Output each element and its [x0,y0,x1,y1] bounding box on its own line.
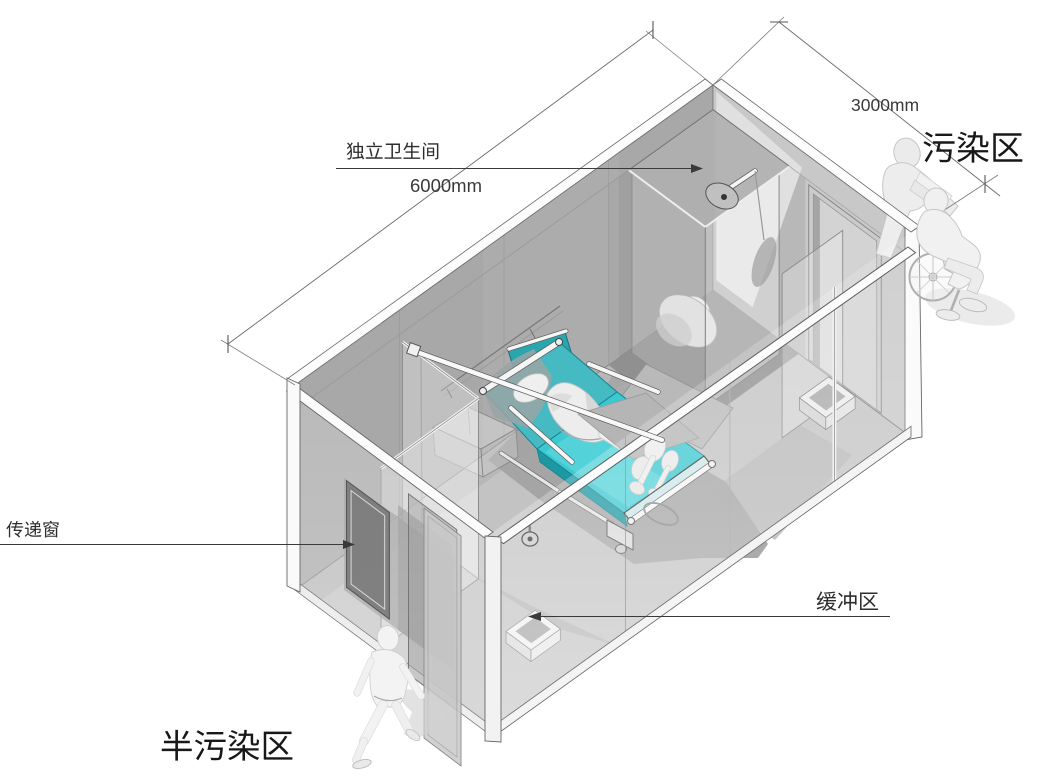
svg-text:6000mm: 6000mm [410,175,482,196]
svg-text:3000mm: 3000mm [851,95,919,115]
